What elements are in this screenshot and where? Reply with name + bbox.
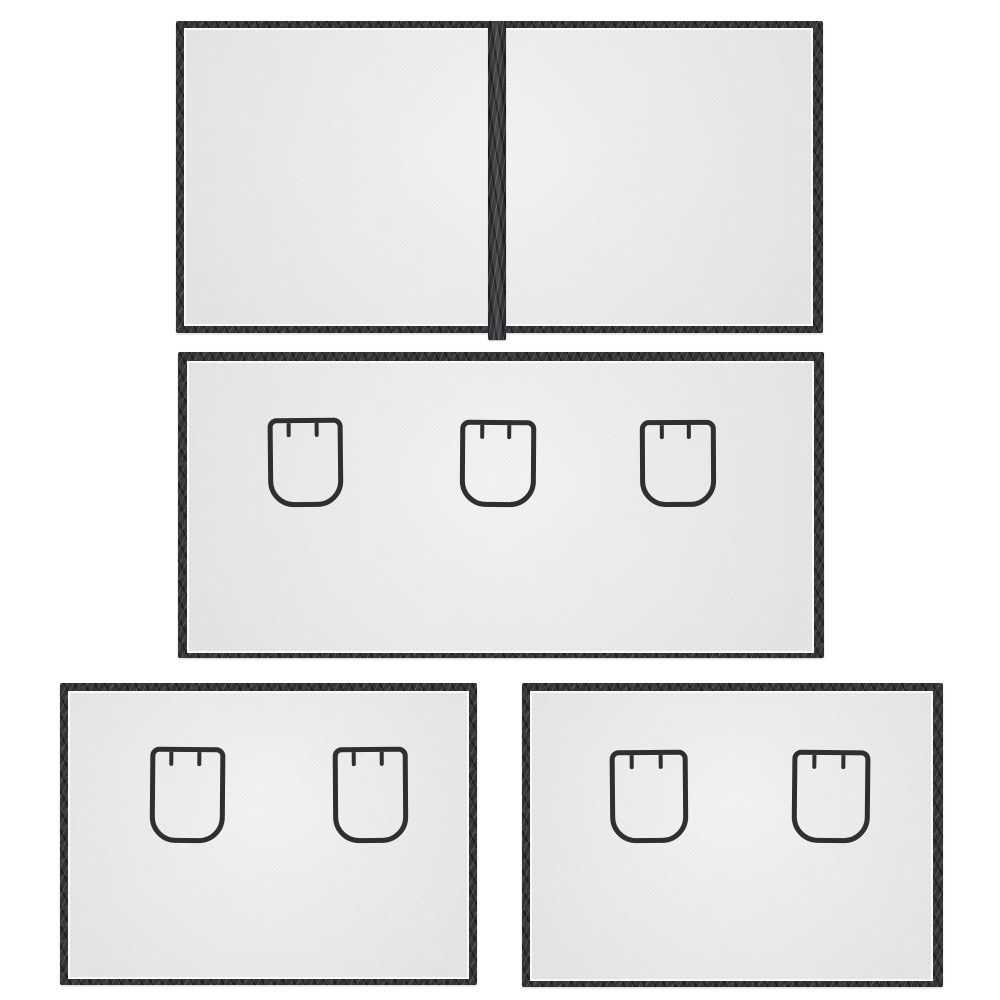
window-flap [150,747,226,844]
bottom-right-panel-two-flaps [522,683,943,987]
mesh-surface [530,691,933,981]
zipper-pull-icon [314,423,318,437]
zipper-pull-icon [287,423,291,437]
top-double-panel-with-center-zipper [176,21,823,333]
zipper-pull-icon [630,755,634,769]
center-zipper-strip [488,21,506,340]
window-flap [333,747,409,844]
zipper-pull-icon [687,425,691,439]
product-photo [0,0,1000,1000]
bottom-left-panel-two-flaps [60,683,477,985]
window-flap [460,420,537,508]
mesh-surface [68,691,469,979]
zipper-pull-icon [658,755,662,769]
zipper-pull-icon [812,755,816,769]
zipper-pull-icon [170,752,174,766]
zipper-pull-icon [480,425,484,439]
zipper-pull-icon [352,752,356,766]
window-flap [640,420,716,507]
window-flap [792,750,871,844]
window-flap [610,750,689,844]
zipper-pull-icon [507,425,511,439]
middle-wide-panel-three-flaps [178,352,824,658]
zipper-pull-icon [379,752,383,766]
window-flap [268,418,344,508]
zipper-pull-icon [197,752,201,766]
zipper-pull-icon [659,425,663,439]
zipper-pull-icon [841,755,845,769]
